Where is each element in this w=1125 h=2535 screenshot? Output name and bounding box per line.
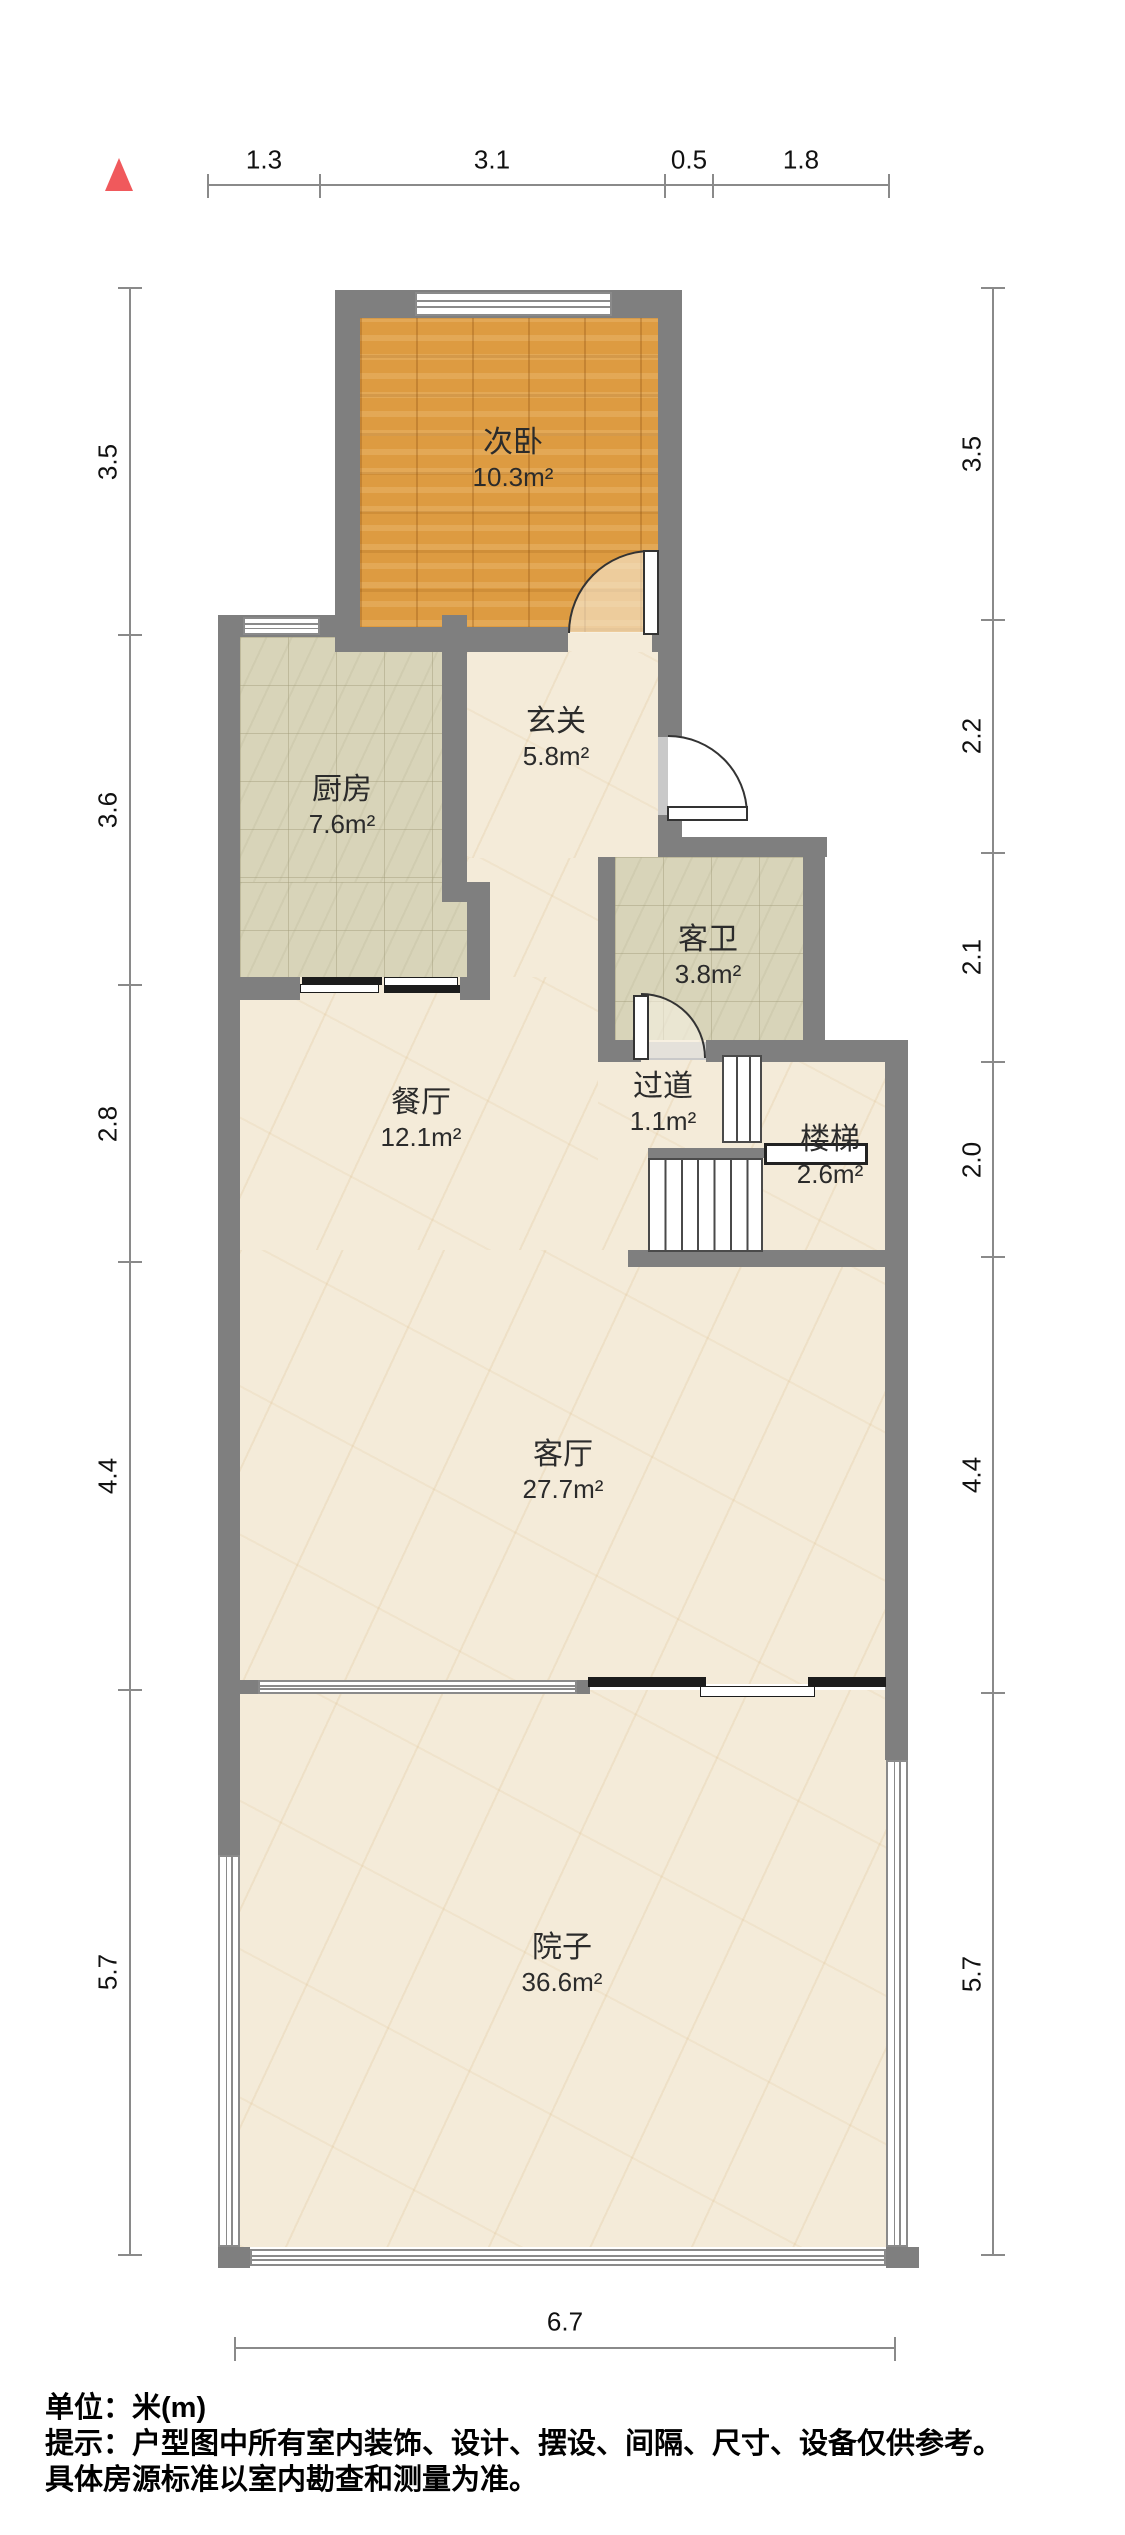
room-area: 27.7m² [523, 1472, 604, 1506]
dim-tick [207, 174, 209, 198]
dim-line-top [208, 184, 890, 186]
room-label-bedroom: 次卧 10.3m² [473, 426, 554, 494]
dim-line-right [992, 288, 994, 2255]
room-area: 1.1m² [630, 1104, 696, 1138]
room-area: 10.3m² [473, 460, 554, 494]
room-label-bathroom: 客卫 3.8m² [675, 923, 741, 991]
kitchen-window [243, 617, 320, 635]
room-area: 2.6m² [797, 1157, 863, 1191]
fence-corner-left [218, 2247, 250, 2268]
dim-tick [118, 634, 142, 636]
dim-tick [118, 2254, 142, 2256]
dim-right-5: 4.4 [957, 1457, 988, 1493]
patio-slider-panel-dark2 [808, 1677, 886, 1687]
tip-note-line2: 具体房源标准以室内勘查和测量为准。 [45, 2462, 1002, 2498]
dim-right-2: 2.2 [957, 718, 988, 754]
dim-tick [118, 1689, 142, 1691]
footer-notes: 单位：米(m) 提示：户型图中所有室内装饰、设计、摆设、间隔、尺寸、设备仅供参考… [45, 2390, 1002, 2498]
dim-tick [118, 287, 142, 289]
dim-tick [981, 852, 1005, 854]
bathroom-top-wall [658, 837, 827, 857]
dim-top-1: 1.3 [246, 145, 282, 176]
right-outer-wall-mid [885, 1040, 908, 1760]
room-name: 过道 [630, 1070, 696, 1104]
room-name: 楼梯 [797, 1123, 863, 1157]
room-name: 次卧 [473, 426, 554, 460]
room-name: 厨房 [309, 773, 375, 807]
right-outer-wall-upper [658, 290, 682, 737]
kitchen-bottom-wall-right [460, 977, 490, 1000]
dim-tick [981, 1692, 1005, 1694]
dim-line-left [129, 288, 131, 2255]
dim-left-3: 2.8 [93, 1106, 124, 1142]
dim-line-bottom [235, 2347, 896, 2349]
courtyard-left-fence [218, 1855, 240, 2247]
dim-tick [118, 1261, 142, 1263]
courtyard-right-fence [886, 1760, 908, 2247]
left-outer-wall [218, 615, 240, 1855]
room-area: 12.1m² [381, 1120, 462, 1154]
bathroom-door-leaf [633, 995, 649, 1060]
dim-tick [894, 2337, 896, 2361]
kitchen-jog-wall [442, 882, 490, 902]
room-label-foyer: 玄关 5.8m² [523, 705, 589, 773]
room-name: 客厅 [523, 1438, 604, 1472]
dim-bottom-1: 6.7 [547, 2307, 583, 2338]
dim-tick [712, 174, 714, 198]
kitchen-floor-lower [240, 882, 467, 977]
room-label-living: 客厅 27.7m² [523, 1438, 604, 1506]
stair-run-top-edge [648, 1148, 768, 1158]
bathroom-left-wall [598, 857, 615, 1062]
room-label-kitchen: 厨房 7.6m² [309, 773, 375, 841]
patio-slider-panel-light [700, 1686, 815, 1697]
kitchen-right-wall [442, 615, 467, 882]
floorplan-canvas: 1.3 3.1 0.5 1.8 3.5 3.6 2.8 4.4 5.7 3.5 … [0, 0, 1125, 2535]
patio-window [258, 1680, 577, 1694]
dim-top-4: 1.8 [783, 145, 819, 176]
patio-slider-panel-dark [588, 1677, 706, 1687]
dim-tick [234, 2337, 236, 2361]
stair-upper-run [722, 1055, 762, 1143]
bedroom-window [415, 292, 612, 316]
room-area: 36.6m² [522, 1965, 603, 1999]
room-area: 3.8m² [675, 957, 741, 991]
stair-bottom-wall [628, 1250, 908, 1267]
bedroom-door-leaf [643, 550, 659, 635]
dim-tick [118, 984, 142, 986]
stair-lower-run [648, 1158, 763, 1252]
kitchen-slider-panel-light [300, 984, 379, 993]
room-label-corridor: 过道 1.1m² [630, 1070, 696, 1138]
courtyard-bottom-fence [250, 2249, 886, 2266]
tip-note-line1: 提示：户型图中所有室内装饰、设计、摆设、间隔、尺寸、设备仅供参考。 [45, 2426, 1002, 2462]
dim-tick [888, 174, 890, 198]
room-name: 餐厅 [381, 1086, 462, 1120]
room-area: 5.8m² [523, 739, 589, 773]
dim-tick [664, 174, 666, 198]
kitchen-bottom-wall-left [218, 977, 300, 1000]
unit-note: 单位：米(m) [45, 2390, 1002, 2426]
room-name: 客卫 [675, 923, 741, 957]
entry-door-arc [668, 735, 748, 815]
entry-door-leaf [667, 806, 748, 821]
dim-tick [981, 1256, 1005, 1258]
room-label-courtyard: 院子 36.6m² [522, 1931, 603, 1999]
dim-left-1: 3.5 [93, 444, 124, 480]
dim-tick [981, 287, 1005, 289]
dim-tick [981, 1061, 1005, 1063]
bedroom-left-wall [335, 290, 360, 650]
dim-right-6: 5.7 [957, 1956, 988, 1992]
patio-divider-left-block [240, 1680, 260, 1694]
dim-left-4: 4.4 [93, 1458, 124, 1494]
dim-tick [319, 174, 321, 198]
room-name: 玄关 [523, 705, 589, 739]
bathroom-right-wall [803, 837, 825, 1062]
dim-right-4: 2.0 [957, 1142, 988, 1178]
dim-tick [981, 2254, 1005, 2256]
dim-tick [981, 619, 1005, 621]
dim-top-2: 3.1 [474, 145, 510, 176]
kitchen-floor [240, 637, 442, 882]
dim-left-2: 3.6 [93, 792, 124, 828]
kitchen-right-wall-lower [467, 902, 490, 977]
room-name: 院子 [522, 1931, 603, 1965]
dim-top-3: 0.5 [671, 145, 707, 176]
room-label-stairs: 楼梯 2.6m² [797, 1123, 863, 1191]
dim-right-3: 2.1 [957, 939, 988, 975]
kitchen-slider-panel-dark2 [384, 985, 460, 993]
dim-right-1: 3.5 [957, 436, 988, 472]
north-arrow-icon [105, 158, 133, 191]
room-area: 7.6m² [309, 807, 375, 841]
room-label-dining: 餐厅 12.1m² [381, 1086, 462, 1154]
fence-corner-right [886, 2247, 919, 2268]
dim-left-5: 5.7 [93, 1954, 124, 1990]
